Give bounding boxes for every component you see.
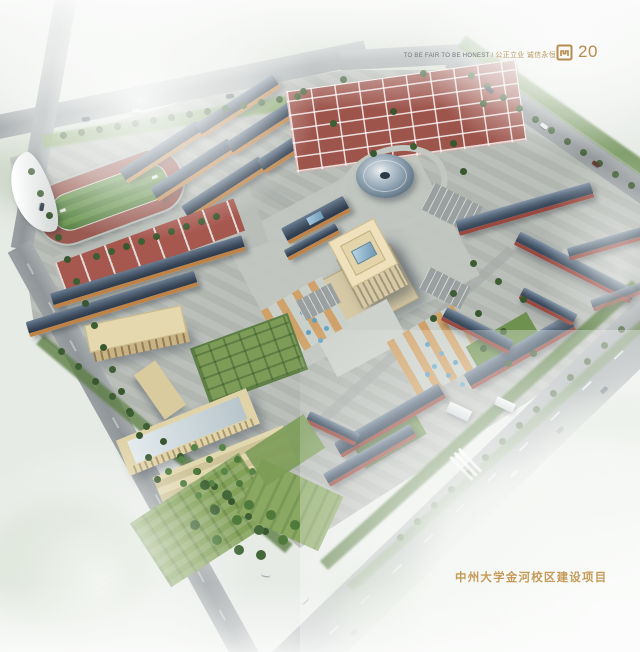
car [300, 596, 309, 604]
pool-dots [425, 342, 430, 347]
campus-aerial-rendering: TO BE FAIR TO BE HONEST / 公正立业 诚信永恒 20 中… [0, 0, 640, 652]
tree-row [58, 348, 65, 355]
motto-chinese: 公正立业 诚信永恒 [495, 52, 556, 59]
car [132, 108, 141, 113]
motto-line: TO BE FAIR TO BE HONEST / 公正立业 诚信永恒 [404, 50, 556, 60]
gymnasium-dome [356, 154, 414, 198]
tree-row [60, 132, 67, 139]
project-title-caption: 中州大学金河校区建设项目 [455, 569, 607, 585]
tree-cluster [200, 480, 210, 490]
goal [59, 208, 66, 213]
tree-cluster [470, 260, 477, 267]
motto-english: TO BE FAIR TO BE HONEST [404, 53, 490, 59]
tree-cluster [300, 88, 307, 95]
tree-grid [165, 468, 172, 475]
logo-number: 20 [578, 42, 598, 62]
gate-monogram-icon [556, 44, 573, 61]
tree-row [468, 72, 475, 79]
goal [152, 175, 159, 180]
atrium-glass [306, 211, 324, 226]
tree-row [93, 253, 100, 260]
crosswalk [86, 571, 120, 600]
foggy-trees [0, 500, 150, 640]
dome-cap [380, 172, 390, 179]
tree-row [618, 326, 625, 333]
tree-row [28, 168, 35, 175]
car [262, 571, 271, 576]
